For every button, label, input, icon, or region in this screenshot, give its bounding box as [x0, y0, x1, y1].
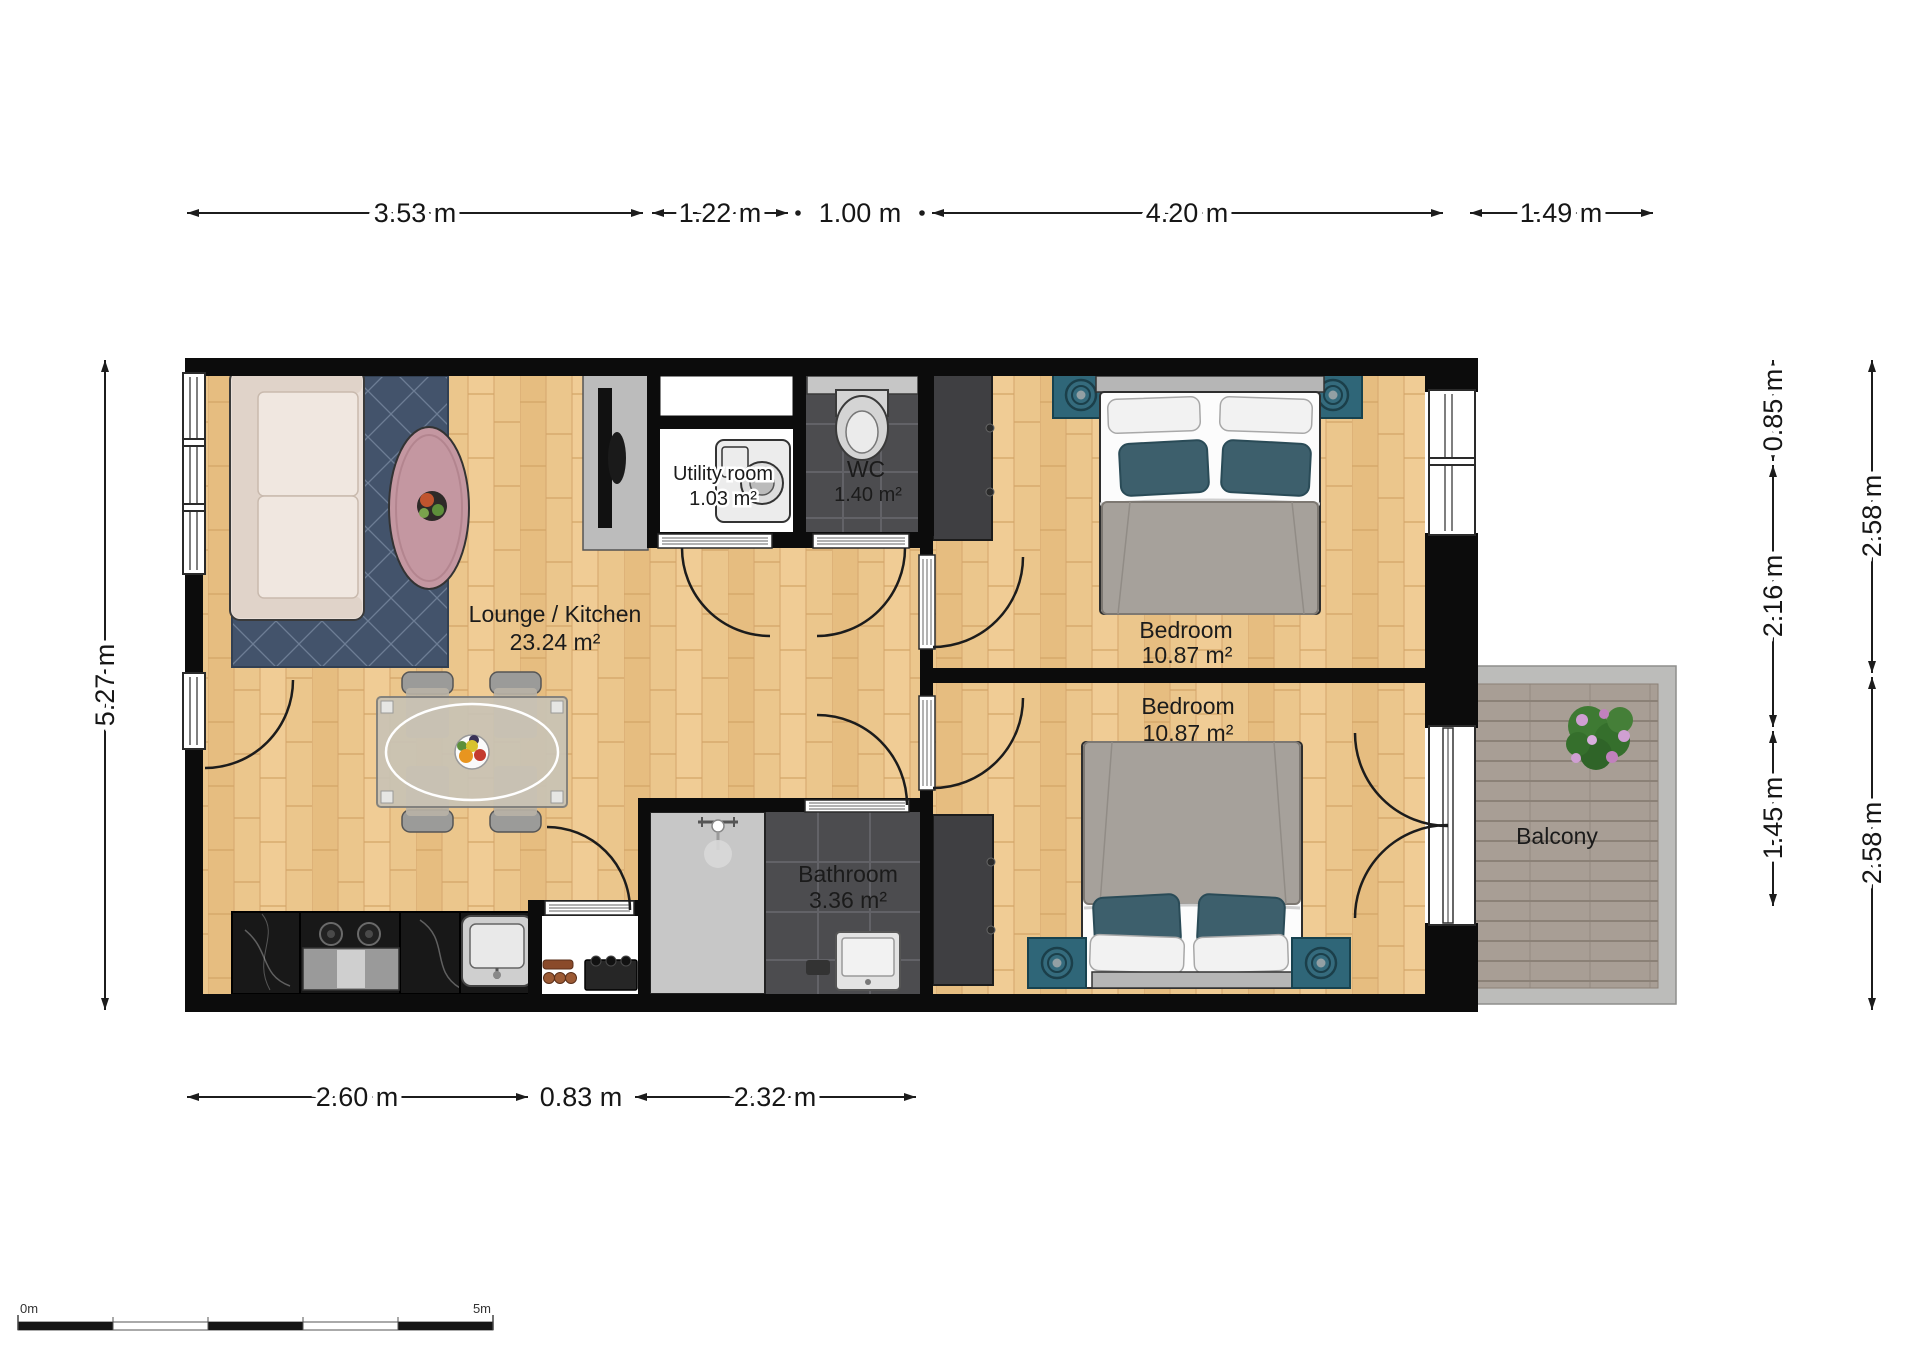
balcony: Balcony [1470, 666, 1676, 1004]
shoe-bench [543, 960, 573, 969]
kitchen-sink [462, 916, 532, 986]
sofa [230, 370, 364, 620]
dim-top-2: 1.22 m [679, 198, 762, 228]
lounge-area: 23.24 m² [510, 629, 601, 655]
shoe-rack [585, 956, 637, 990]
dim-bottom-2: 0.83 m [540, 1082, 623, 1112]
dim-bottom-3: 2.32 m [734, 1082, 817, 1112]
kitchen-counter [232, 912, 532, 994]
bedroom-bottom-name: Bedroom [1141, 693, 1234, 719]
scale-bar: 0m 5m [18, 1301, 493, 1330]
utility-area: 1.03 m² [689, 488, 757, 510]
bathroom-area: 3.36 m² [809, 887, 887, 913]
dim-right-inner-1: 0.85 m [1758, 369, 1788, 452]
floorplan-page: Balcony [0, 0, 1920, 1358]
fruit-bowl [455, 735, 489, 769]
nightstand [1292, 938, 1350, 988]
shower-tray [650, 812, 765, 994]
dining-set [377, 672, 567, 832]
dim-right-inner-2: 2.16 m [1758, 555, 1788, 638]
dim-top-3: 1.00 m [819, 198, 902, 228]
bathroom-name: Bathroom [798, 861, 898, 887]
wardrobe-bottom [933, 815, 995, 985]
bedroom-bottom-area: 10.87 m² [1143, 720, 1234, 746]
dim-top-5: 1.49 m [1520, 198, 1603, 228]
lounge-name: Lounge / Kitchen [469, 601, 642, 627]
coffee-table [389, 427, 469, 589]
dim-right-inner-3: 1.45 m [1758, 777, 1788, 860]
tv-unit [583, 372, 648, 550]
oven [303, 948, 399, 990]
dim-top-1: 3.53 m [374, 198, 457, 228]
scale-start-label: 0m [20, 1301, 38, 1316]
dim-right-outer-1: 2.58 m [1857, 475, 1887, 558]
bedroom-top-area: 10.87 m² [1142, 642, 1233, 668]
dim-top-4: 4.20 m [1146, 198, 1229, 228]
wc-area: 1.40 m² [834, 484, 902, 506]
utility-name: Utility room [673, 463, 773, 485]
scale-end-label: 5m [473, 1301, 491, 1316]
window-bedroom-top [1429, 390, 1475, 535]
bath-shelf [806, 960, 830, 975]
dim-right-outer-2: 2.58 m [1857, 802, 1887, 885]
dim-bottom-1: 2.60 m [316, 1082, 399, 1112]
nightstand [1028, 938, 1086, 988]
floorplan-canvas: Balcony [0, 0, 1920, 1358]
wc-name: WC [847, 456, 885, 482]
utility-closet-floor [660, 376, 793, 416]
balcony-label: Balcony [1516, 823, 1598, 849]
dim-left-1: 5.27 m [90, 644, 120, 727]
window-left-large [183, 373, 205, 574]
bed-top [1096, 376, 1324, 614]
wardrobe-top [933, 372, 994, 540]
bedroom-top-name: Bedroom [1139, 617, 1232, 643]
bed-bottom [1082, 742, 1308, 988]
